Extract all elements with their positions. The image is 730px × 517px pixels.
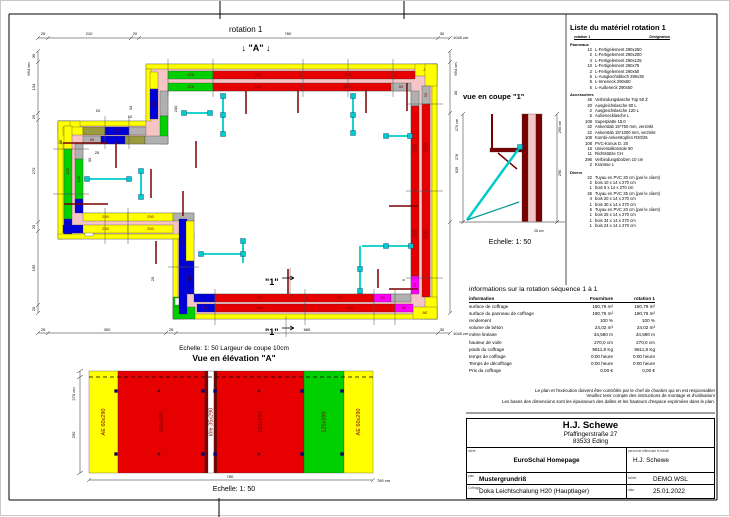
fitting-square [199,252,204,257]
panel-label: 250x290 [258,411,264,432]
panel-Y [58,234,194,239]
drawing-text: 760 [285,31,292,36]
material-list-col-name: Désignation [649,35,670,39]
material-name: L-Außeneck 290x50 [595,85,632,90]
fitting-square [182,111,187,116]
info-row: rendement100 %100 % [469,317,655,324]
drawing-text: 195 [31,264,36,271]
material-item: 5L-Außeneck 290x50 [570,85,712,90]
panel-label: 50 [180,240,185,245]
fitting-square [351,113,356,118]
panel-label: 50 [90,137,95,142]
panel-label: 250 [255,84,262,89]
plan-value: Mustergrundriß [479,476,526,483]
drawing-text: 300 [104,327,111,332]
panel-D [522,114,528,222]
fitting-square [241,252,246,257]
drawing-text: 30 [453,90,458,95]
rotation-info-title: informations sur la rotation séquence 1 … [469,286,655,293]
panel-K [75,144,83,159]
info-cell: 100 % [565,317,613,324]
info-cell: 270,0 cm [565,339,613,346]
info-cell: 100 % [613,317,655,324]
fitting-square [358,289,363,294]
panel-K [145,136,168,144]
drawing-text: 25 [41,327,46,332]
fitting-square [158,453,160,455]
title-block: H.J. Schewe Pfaffingerstraße 27 83533 Ed… [466,418,715,499]
info-cell: surface de coffrage [469,303,565,310]
info-cell: 190,76 m² [613,310,655,317]
worker-label: personne effectuant le travail [628,449,669,453]
info-cell: 0,00 € [565,367,613,374]
fitting-square [384,134,389,139]
panel-Y [186,221,194,261]
info-cell: 24,02 m³ [565,324,613,331]
material-qty: 1 [570,223,592,228]
panel-label: 250 [257,305,264,310]
panel-O [125,136,145,144]
fitting-square [301,390,304,393]
info-cell: 0:00 heure [613,360,655,367]
panel-P [528,114,536,222]
panel-label: 250 [345,72,352,77]
fitting-square [358,267,363,272]
drawing-text: 25 [169,327,174,332]
panel-K [391,294,411,302]
material-list-header: rotation 1 Désignation [574,35,670,40]
company-street: Pfaffingerstraße 27 [467,431,714,438]
info-cell: surface du panneau de coffrage [469,310,565,317]
info-cell: Prix du coffrage [469,367,565,374]
panel-label: 50 [204,305,209,310]
disclaimer-line: Les bases des dimensions sont les épaiss… [471,399,715,404]
drawing-text: 25 [31,224,36,229]
panel-K [129,127,146,135]
panel-G [64,194,72,219]
fitting-square [518,145,523,150]
drawing-text: 10 [128,114,133,119]
material-item: 2Kranöse L [570,162,712,167]
fitting-square [258,390,260,392]
rotation-info-header: information Fourniture rotation 1 [469,295,655,303]
panel-label: 50 [402,305,407,310]
drawing-text: 20 [96,108,101,113]
panel-label: 50 [115,128,120,133]
panel-label: 125 [76,175,81,182]
fitting-square [208,111,213,116]
panel-label: 250 [347,305,354,310]
drawing-text: Echelle: 1: 50 Largeur de coupe 10cm [179,345,289,352]
drawing-sheet: { "plan": { "title": "rotation 1", "scal… [0,0,730,516]
info-cell: 9811,8 Kg [565,346,613,353]
panel-label: 50 [412,282,417,287]
material-list-col-qty: rotation 1 [574,35,590,39]
info-cell: poids du coffrage [469,346,565,353]
fitting-square [351,94,356,99]
panel-label: 50 [423,92,428,97]
title-block-company: H.J. Schewe Pfaffingerstraße 27 83533 Ed… [467,419,714,448]
panel-label: 250 [255,72,262,77]
info-row: hauteur de voile270,0 cm270,0 cm [469,339,655,346]
info-cell: temps de coffrage [469,353,565,360]
panel-label: 250 [257,295,264,300]
drawing-text: 694 cm [26,62,31,76]
info-row: volume de béton24,02 m³24,02 m³ [469,324,655,331]
fitting-square [409,244,414,249]
rotation-info-body: surface de coffrage180,79 m²180,79 m²sur… [469,303,655,374]
drawing-text: 780 cm [377,478,391,483]
drawing-text: 30 [440,327,445,332]
drawing-text: 20 [133,31,138,36]
panel-label: 50 [380,295,385,300]
title-block-row-client: client EuroSchal Homepage personne effec… [467,448,714,473]
drawing-text: 1045 cm [453,35,469,40]
fitting-square [202,390,205,393]
fitting-square [221,94,226,99]
drawing-text: AE [59,139,63,144]
info-cell: 0,00 € [613,367,655,374]
panel-label: 250 [336,295,343,300]
drawing-text: vue en coupe "1" [463,92,525,101]
client-value: EuroSchal Homepage [467,457,626,464]
fitting-square [214,453,217,456]
info-cell: 0:00 heure [613,353,655,360]
info-cell: Temps de décoffrage [469,360,565,367]
fitting-square [139,195,144,200]
drawing-text: 665 [304,327,311,332]
info-cell: rendement [469,317,565,324]
panel-label: 250 [147,226,154,231]
panel-label: 125x290 [321,411,327,432]
material-list-body: Panneaux12L-Fertigelement 290x2502L-Fert… [570,42,712,229]
drawing-text: 290 [558,170,562,176]
panel-label: 250 [423,143,429,152]
drawing-text: 20 [150,276,155,281]
info-row: Prix du coffrage0,00 €0,00 € [469,367,655,374]
material-item: 1bois 24 x 14 x 270 cm [570,223,712,228]
panel-label: 250 [102,226,109,231]
fitting-square [139,169,144,174]
panel-B [63,225,83,233]
drawing-text: 290 [71,431,76,438]
info-cell: 180,79 m² [565,303,613,310]
drawing-text: 134 [31,83,36,90]
panel-label: 125 [187,84,194,89]
panel-Y [432,64,437,319]
panel-label: AE 60x290 [356,409,362,436]
drawing-text: 30 [440,31,445,36]
drawing-text: Vue en élévation "A" [192,353,275,363]
drawing-text: "1" [265,327,279,337]
info-cell: 34,580 m [565,331,613,338]
panel-label: 50 [399,84,404,89]
info-cell: hauteur de voile [469,339,565,346]
fitting-square [221,113,226,118]
drawing-text: 780 [227,474,234,479]
company-name: H.J. Schewe [467,421,714,431]
panel-D [214,371,217,473]
panel-label: 250x290 [159,411,165,432]
panel-R [393,71,415,79]
material-list-title: Liste du matériel rotation 1 [570,23,712,32]
panel-label: 250 [147,214,154,219]
worker-value: H.J. Schewe [633,457,669,464]
panel-K [160,91,168,116]
panel-label: 250 [412,144,418,153]
drawing-text: 210 [86,31,93,36]
drawing-text: 240 [173,105,178,112]
panel-Y [425,64,437,86]
file-label: fichier [628,476,637,480]
info-cell: volume de béton [469,324,565,331]
drawing-text: 270 cm [455,119,459,131]
fitting-square [85,177,90,182]
fitting-square [351,131,356,136]
drawing-text: 629 [455,167,459,173]
panel-B [194,294,215,302]
info-row: poids du coffrage9811,8 Kg9811,8 Kg [469,346,655,353]
fitting-square [202,453,205,456]
drawing-text: "1" [265,277,279,287]
fitting-square [301,453,304,456]
drawing-text: 20 [187,276,192,281]
file-value: DEMO.WSL [653,476,688,483]
drawing-text: 270 cm [71,387,76,401]
drawing-text: 34 [128,105,133,110]
info-cell: mètre linéaire [469,331,565,338]
drawing-text: 1045 cm [453,331,469,336]
drawing-text: 5 [401,278,406,281]
panel-O [83,127,105,135]
info-cell: 180,79 m² [613,303,655,310]
fitting-square [258,453,260,455]
fitting-square [115,390,118,393]
panel-label: 125 [187,72,194,77]
material-qty: 2 [570,162,592,167]
fitting-square [341,453,344,456]
drawing-text: ↓ "A" ↓ [241,43,270,53]
client-label: client [468,449,475,453]
drawing-text: 290 cm [558,121,562,133]
fitting-square [241,239,246,244]
panel-label: 125 [65,167,70,174]
drawing-text: Echelle: 1: 50 [213,486,256,493]
drawing-text: 25 [95,150,100,155]
fitting-square [341,390,344,393]
material-name: bois 24 x 14 x 270 cm [595,223,636,228]
panel-label: 250 [412,229,418,238]
info-cell: 24,02 m³ [613,324,655,331]
material-list: Liste du matériel rotation 1 rotation 1 … [570,23,712,229]
info-row: mètre linéaire34,580 m34,580 m [469,331,655,338]
formwork-value: Doka Leichtschalung H20 (Hauptlager) [479,488,589,495]
panel-B [179,267,187,314]
panel-label: 250 [423,230,429,239]
fitting-square [221,132,226,137]
company-city: 83533 Eding [467,438,714,445]
info-cell: 9811,8 Kg [613,346,655,353]
drawing-text: 20 [31,114,36,119]
panel-Y [64,126,72,149]
info-cell: 270,0 cm [613,339,655,346]
info-row: surface de coffrage180,79 m²180,79 m² [469,303,655,310]
fitting-square [384,244,389,249]
panel-label: 250 [344,84,351,89]
drawing-text: Echelle: 1: 50 [489,239,532,246]
info-cell: 0:00 heure [565,353,613,360]
fitting-square [408,134,413,139]
date-value: 25.01.2022 [653,488,685,495]
panel-label: AE 60x290 [101,409,107,436]
panel-label: AE [422,310,428,315]
material-qty: 5 [570,85,592,90]
drawing-text: 694 cm [453,62,458,76]
panel-Y [146,64,437,69]
drawing-text: 30 [31,53,36,58]
panel-D [536,114,542,222]
fitting-square [115,453,118,456]
info-cell: 0:00 heure [565,360,613,367]
drawing-text: 30 [87,157,92,162]
disclaimer-text: Le plan et l'exécution doivent être cont… [471,388,715,404]
info-cell: 190,76 m² [565,310,613,317]
panel-R [422,278,430,297]
drawing-text: 25 cm [534,229,544,233]
title-block-row-formwork: Coffrage Doka Leichtschalung H20 (Hauptl… [467,485,714,498]
drawing-text: 270 [31,167,36,174]
plan-label: plan [468,474,474,478]
fitting-square [127,177,132,182]
info-cell: 34,580 m [613,331,655,338]
rotation-info-table: informations sur la rotation séquence 1 … [469,286,655,374]
title-block-row-plan: plan Mustergrundriß fichier DEMO.WSL [467,473,714,485]
info-row: Temps de décoffrage0:00 heure0:00 heure [469,360,655,367]
info-row: temps de coffrage0:00 heure0:00 heure [469,353,655,360]
fitting-square [214,390,217,393]
panel-label: tôle 35x290 [208,408,214,436]
drawing-text: rotation 1 [229,25,263,34]
drawing-line [467,147,520,220]
panel-label: 50 [151,101,156,106]
drawing-text: 25 [41,31,46,36]
plan-wall-ring [58,64,437,319]
panel-label: 250 [102,214,109,219]
panel-B [75,199,83,213]
drawing-text: 20 [31,306,36,311]
drawing-text: 276 [455,154,459,160]
info-row: surface du panneau de coffrage190,76 m²1… [469,310,655,317]
panel-Y [150,72,158,89]
material-name: Kranöse L [595,162,614,167]
fitting-square [158,390,160,392]
date-label: date [628,488,634,492]
